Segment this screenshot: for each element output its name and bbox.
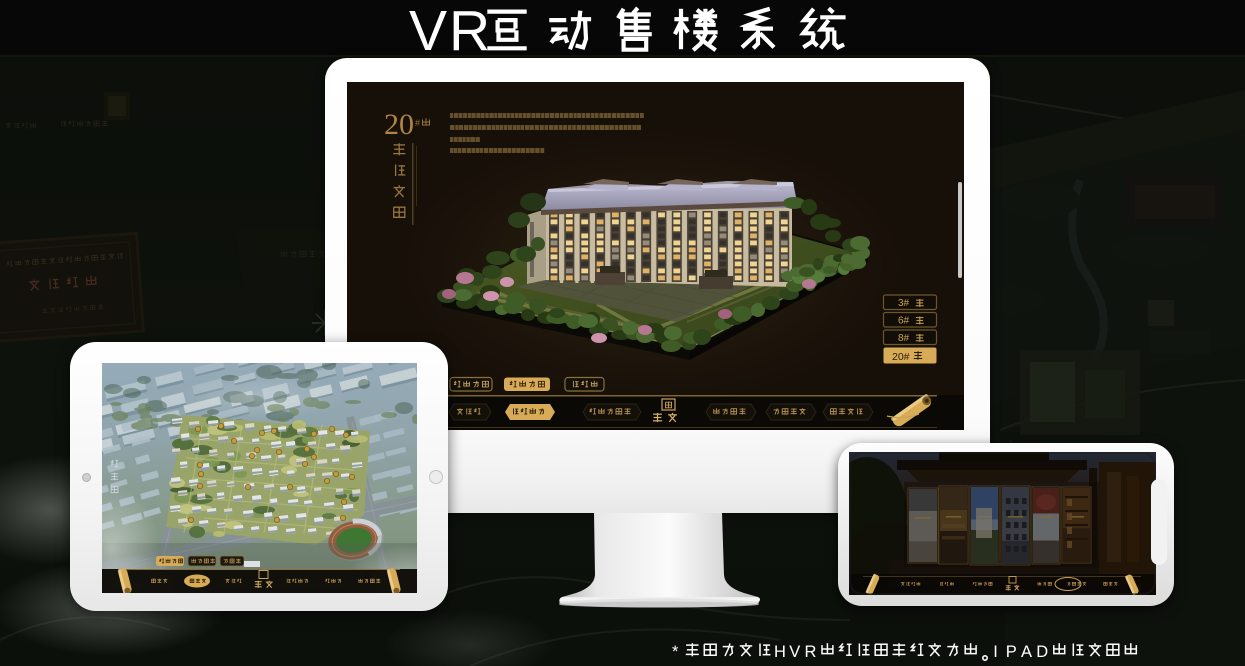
svg-text:*: *: [672, 643, 679, 661]
svg-text:3#: 3#: [898, 298, 910, 309]
svg-text:20: 20: [384, 108, 414, 141]
svg-text:H: H: [774, 643, 786, 661]
svg-text:VR: VR: [409, 0, 492, 60]
svg-text:8#: 8#: [898, 333, 910, 344]
svg-text:#: #: [415, 118, 420, 128]
svg-text:I: I: [993, 643, 998, 661]
svg-text:P: P: [1006, 643, 1017, 661]
svg-text:V: V: [789, 643, 800, 661]
svg-text:A: A: [1021, 643, 1032, 661]
svg-text:20#: 20#: [892, 351, 910, 363]
svg-text:6#: 6#: [898, 316, 910, 327]
svg-text:D: D: [1036, 643, 1048, 661]
svg-text:R: R: [805, 643, 817, 661]
